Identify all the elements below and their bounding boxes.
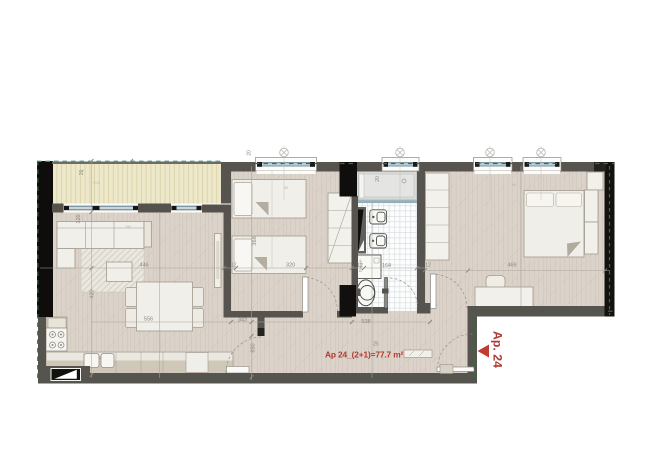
- svg-text:12: 12: [231, 263, 237, 269]
- svg-text:Ap. 24: Ap. 24: [491, 331, 505, 368]
- svg-text:40: 40: [80, 169, 84, 173]
- svg-text:164: 164: [382, 263, 391, 269]
- svg-text:+0.0: +0.0: [92, 181, 100, 185]
- svg-text:25: 25: [373, 342, 379, 348]
- svg-text:90: 90: [284, 186, 288, 190]
- svg-text:120: 120: [76, 214, 82, 223]
- svg-text:420: 420: [90, 289, 96, 298]
- svg-text:368: 368: [252, 236, 258, 245]
- svg-text:538: 538: [361, 319, 370, 325]
- svg-text:12: 12: [425, 263, 431, 269]
- svg-text:469: 469: [507, 263, 516, 269]
- svg-text:20: 20: [375, 176, 381, 182]
- svg-text:343: 343: [238, 318, 247, 324]
- svg-text:12: 12: [357, 263, 363, 269]
- svg-text:Ap 24_(2+1)=77.7 m²: Ap 24_(2+1)=77.7 m²: [325, 350, 404, 360]
- svg-text:20: 20: [247, 150, 253, 156]
- svg-text:160: 160: [125, 225, 131, 229]
- svg-text:650: 650: [251, 343, 257, 352]
- svg-text:hk: hk: [512, 183, 516, 187]
- svg-text:556: 556: [144, 317, 153, 323]
- svg-text:446: 446: [139, 263, 148, 269]
- svg-text:320: 320: [286, 263, 295, 269]
